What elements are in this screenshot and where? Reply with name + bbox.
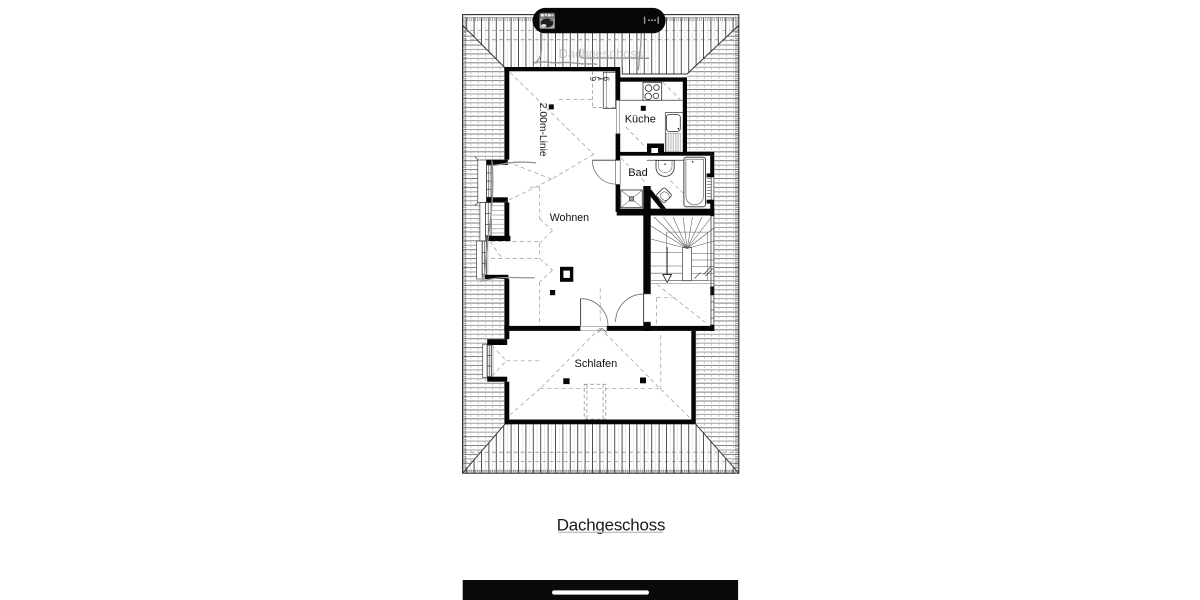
svg-text:2.00m-Linie: 2.00m-Linie xyxy=(537,103,548,157)
svg-text:Wohnen: Wohnen xyxy=(550,212,589,224)
svg-text:Küche: Küche xyxy=(625,113,656,125)
svg-text:Schlafen: Schlafen xyxy=(574,358,617,370)
svg-text:Dachgeschoss: Dachgeschoss xyxy=(559,47,643,61)
svg-text:9/16: 9/16 xyxy=(588,77,612,82)
svg-text:Bad: Bad xyxy=(628,167,648,179)
